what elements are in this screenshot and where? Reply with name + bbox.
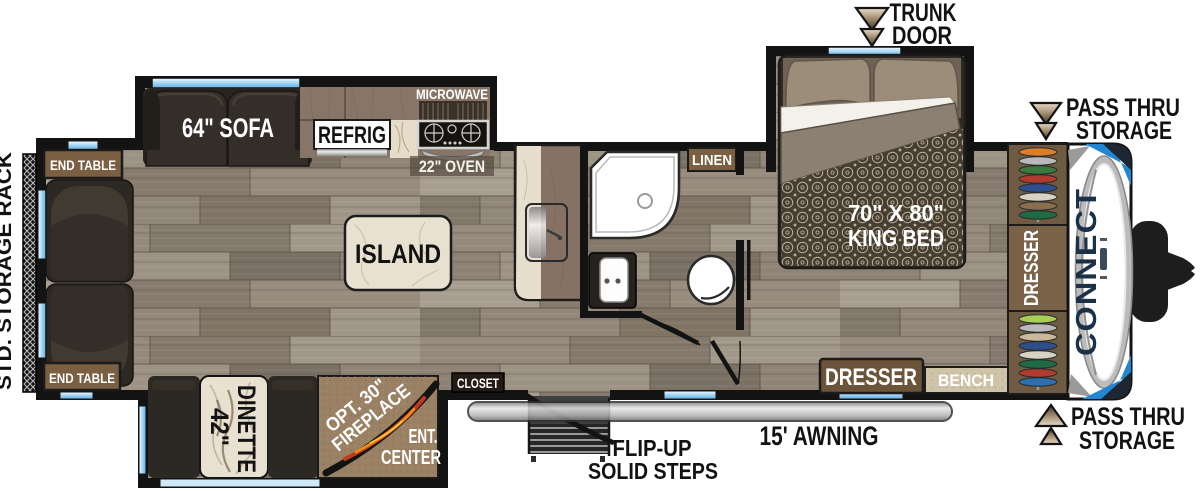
svg-text:64" SOFA: 64" SOFA bbox=[182, 113, 274, 143]
svg-text:22" OVEN: 22" OVEN bbox=[419, 157, 485, 176]
svg-text:STD. STORAGE RACK: STD. STORAGE RACK bbox=[0, 151, 16, 390]
svg-text:ENT.: ENT. bbox=[409, 426, 438, 448]
svg-text:CONNECT: CONNECT bbox=[1071, 188, 1103, 356]
svg-text:DRESSER: DRESSER bbox=[825, 364, 917, 391]
svg-text:15' AWNING: 15' AWNING bbox=[760, 421, 879, 451]
svg-text:LINEN: LINEN bbox=[692, 152, 732, 169]
svg-text:SOLID STEPS: SOLID STEPS bbox=[588, 458, 718, 484]
svg-text:DINETTE: DINETTE bbox=[232, 385, 260, 473]
svg-text:CLOSET: CLOSET bbox=[457, 375, 499, 391]
svg-text:STORAGE: STORAGE bbox=[1076, 117, 1172, 145]
svg-text:70" X 80": 70" X 80" bbox=[848, 200, 944, 226]
svg-text:DOOR: DOOR bbox=[892, 22, 952, 50]
svg-text:42": 42" bbox=[205, 408, 233, 446]
svg-text:DRESSER: DRESSER bbox=[1021, 230, 1043, 306]
svg-text:END TABLE: END TABLE bbox=[50, 158, 116, 173]
svg-text:END TABLE: END TABLE bbox=[49, 371, 115, 386]
svg-text:ISLAND: ISLAND bbox=[355, 239, 441, 269]
svg-text:KING BED: KING BED bbox=[848, 225, 944, 251]
svg-text:CENTER: CENTER bbox=[381, 447, 441, 469]
svg-text:STORAGE: STORAGE bbox=[1079, 427, 1175, 455]
svg-text:MICROWAVE: MICROWAVE bbox=[416, 87, 488, 102]
svg-text:REFRIG: REFRIG bbox=[318, 122, 386, 149]
svg-text:BENCH: BENCH bbox=[938, 371, 994, 390]
